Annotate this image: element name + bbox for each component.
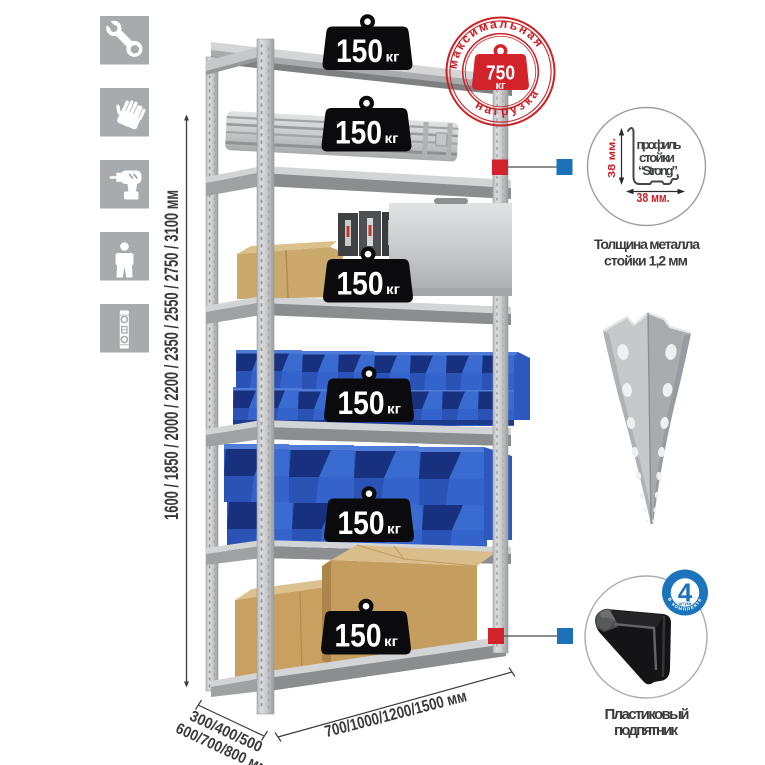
- svg-text:“Strong”: “Strong”: [638, 163, 678, 178]
- svg-text:подпятник: подпятник: [614, 722, 678, 739]
- svg-text:Толщина металла: Толщина металла: [594, 236, 700, 252]
- svg-text:38 мм.: 38 мм.: [637, 190, 670, 205]
- svg-text:стойки 1,2 мм: стойки 1,2 мм: [604, 253, 688, 269]
- svg-text:Пластиковый: Пластиковый: [605, 706, 690, 723]
- svg-text:кг: кг: [495, 80, 506, 92]
- svg-text:штуки: штуки: [679, 601, 692, 606]
- svg-text:1600 / 1850 / 2000 / 2200 / 23: 1600 / 1850 / 2000 / 2200 / 2350 / 2550 …: [162, 190, 183, 520]
- svg-text:38 мм.: 38 мм.: [606, 138, 618, 178]
